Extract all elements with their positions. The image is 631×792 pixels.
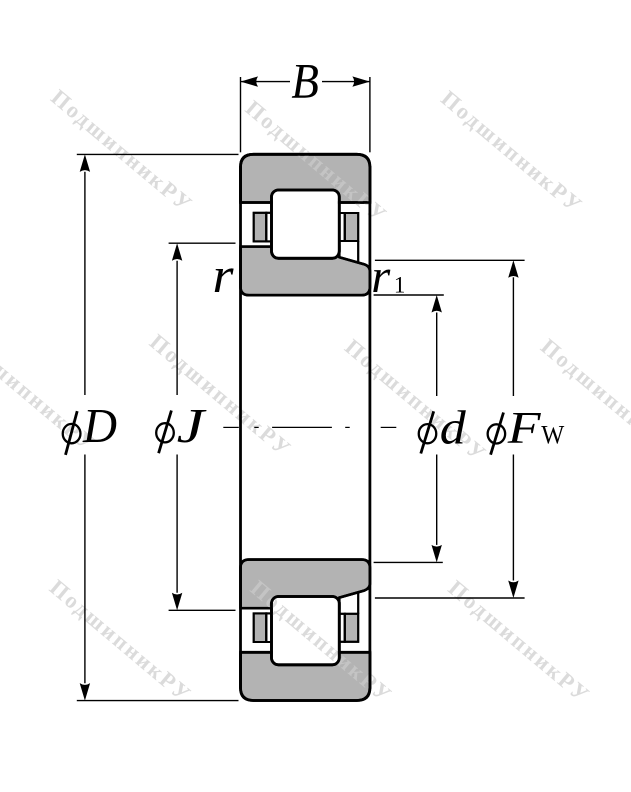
svg-text:1: 1 <box>394 272 406 297</box>
svg-text:r: r <box>213 247 235 303</box>
svg-text:J: J <box>177 398 207 453</box>
svg-text:D: D <box>82 399 117 453</box>
svg-text:d: d <box>440 401 467 454</box>
svg-text:F: F <box>507 403 542 453</box>
svg-text:r: r <box>371 250 390 303</box>
svg-text:B: B <box>291 53 319 109</box>
svg-text:W: W <box>541 420 564 449</box>
